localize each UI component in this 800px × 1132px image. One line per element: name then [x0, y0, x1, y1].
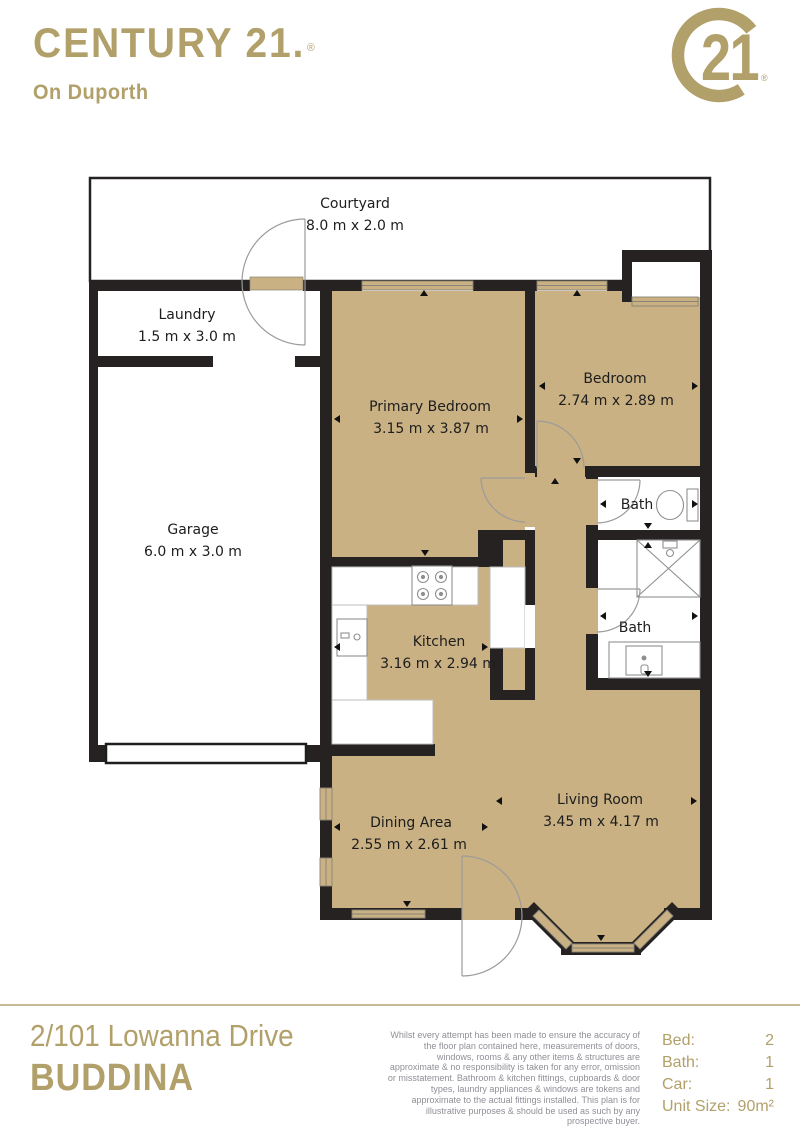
label-laundry-dims: 1.5 m x 3.0 m — [138, 329, 236, 345]
label-living: Living Room — [557, 792, 643, 808]
vanity-sink-icon — [609, 642, 700, 678]
floorplan-svg: Courtyard 8.0 m x 2.0 m Laundry 1.5 m x … — [0, 0, 800, 1132]
detail-value: 1 — [765, 1052, 774, 1074]
label-living-dims: 3.45 m x 4.17 m — [543, 814, 659, 830]
address-suburb: BUDDINA — [30, 1057, 294, 1100]
stove-icon — [412, 566, 452, 605]
label-kitchen-dims: 3.16 m x 2.94 m — [380, 656, 496, 672]
detail-row-car: Car: 1 — [662, 1074, 774, 1096]
property-address: 2/101 Lowanna Drive BUDDINA — [30, 1018, 323, 1100]
detail-label: Bed: — [662, 1030, 695, 1052]
label-laundry: Laundry — [158, 307, 215, 323]
detail-value: 2 — [765, 1030, 774, 1052]
label-bath-upper: Bath — [621, 497, 654, 513]
footer-divider — [0, 1004, 800, 1006]
detail-row-unit-size: Unit Size: 90m² — [662, 1096, 774, 1118]
property-details: Bed: 2 Bath: 1 Car: 1 Unit Size: 90m² — [662, 1030, 774, 1118]
detail-label: Bath: — [662, 1052, 699, 1074]
floorplan-page: CENTURY 21.® On Duporth 21 ® — [0, 0, 800, 1132]
detail-label: Car: — [662, 1074, 692, 1096]
label-dining: Dining Area — [370, 815, 452, 831]
garage-door — [106, 744, 306, 763]
label-dining-dims: 2.55 m x 2.61 m — [351, 837, 467, 853]
wall-ne-bump — [622, 250, 700, 302]
shower-icon — [637, 540, 700, 597]
room-laundry-floor — [98, 291, 320, 356]
toilet-icon — [657, 489, 699, 521]
detail-value: 1 — [765, 1074, 774, 1096]
address-street: 2/101 Lowanna Drive — [30, 1018, 294, 1054]
detail-label: Unit Size: — [662, 1096, 730, 1118]
detail-row-bed: Bed: 2 — [662, 1030, 774, 1052]
label-bath-lower: Bath — [619, 620, 652, 636]
kitchen-sink-icon — [337, 619, 367, 656]
detail-row-bath: Bath: 1 — [662, 1052, 774, 1074]
detail-value: 90m² — [738, 1096, 774, 1118]
label-courtyard-dims: 8.0 m x 2.0 m — [306, 218, 404, 234]
disclaimer-text: Whilst every attempt has been made to en… — [386, 1030, 640, 1127]
label-bedroom: Bedroom — [583, 371, 646, 387]
label-kitchen: Kitchen — [413, 634, 466, 650]
label-primary-bedroom-dims: 3.15 m x 3.87 m — [373, 421, 489, 437]
label-courtyard: Courtyard — [320, 196, 390, 212]
label-primary-bedroom: Primary Bedroom — [369, 399, 491, 415]
label-bedroom-dims: 2.74 m x 2.89 m — [558, 393, 674, 409]
label-garage-dims: 6.0 m x 3.0 m — [144, 544, 242, 560]
label-garage: Garage — [167, 522, 218, 538]
